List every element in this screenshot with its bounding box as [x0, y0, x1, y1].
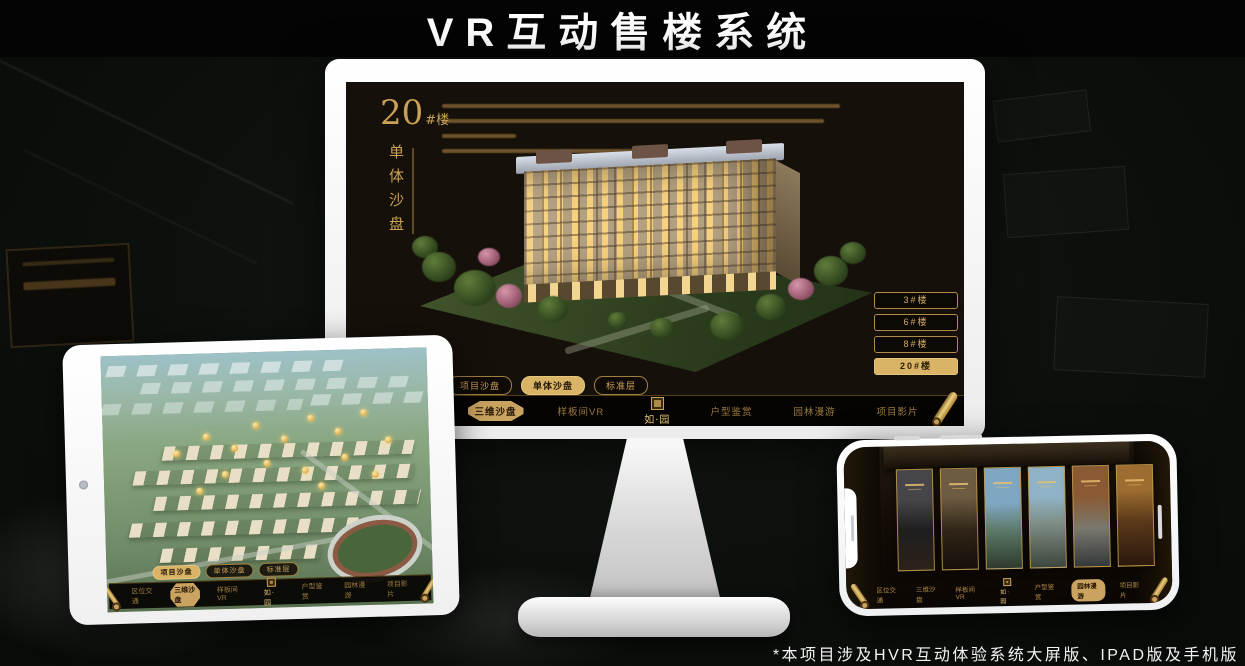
seal-icon [266, 577, 275, 586]
scene-gallery [896, 464, 1155, 571]
distant-buildings [100, 399, 303, 416]
gallery-panel[interactable] [1116, 464, 1155, 567]
brand-logo: 如·园 [1000, 578, 1015, 605]
phone-screen: 区位交通 三维沙盘 样板间VR 如·园 户型鉴赏 园林漫游 项目影片 [843, 441, 1172, 610]
paragraph-line [442, 104, 840, 108]
nav-item-model-room-vr[interactable]: 样板间VR [213, 583, 245, 605]
building-number-badge[interactable] [318, 482, 325, 489]
nav-item-project-film[interactable]: 项目影片 [1117, 578, 1146, 601]
nav-item-floorplans[interactable]: 户型鉴赏 [1032, 579, 1061, 602]
building-number-badge[interactable] [252, 422, 259, 429]
tree [538, 296, 568, 322]
scroll-icon [932, 390, 959, 425]
monitor-stand-base [518, 597, 790, 637]
paragraph-line [442, 134, 516, 138]
nav-item-garden-roam[interactable]: 园林漫游 [340, 578, 370, 603]
gallery-panel[interactable] [896, 469, 935, 572]
smartphone-device: 区位交通 三维沙盘 样板间VR 如·园 户型鉴赏 园林漫游 项目影片 [836, 433, 1180, 616]
building-number-badge[interactable] [335, 428, 342, 435]
tab-single-building[interactable]: 单体沙盘 [521, 376, 585, 395]
brand-logo-text: 如·园 [1000, 587, 1015, 605]
tree [710, 312, 744, 340]
gallery-panel[interactable] [1028, 466, 1067, 569]
building-number-badge[interactable] [263, 460, 270, 467]
roof-gable [726, 139, 762, 154]
nav-item-3d-sandbox[interactable]: 三维沙盘 [468, 401, 524, 421]
building-side-face [776, 160, 800, 285]
phone-navbar: 区位交通 三维沙盘 样板间VR 如·园 户型鉴赏 园林漫游 项目影片 [856, 579, 1162, 604]
tab-standard-floor[interactable]: 标准层 [594, 376, 648, 395]
flower-tree [788, 278, 814, 300]
background-building-block [1053, 296, 1209, 378]
brand-logo-text: 如·园 [264, 587, 279, 607]
nav-item-floorplans[interactable]: 户型鉴赏 [703, 401, 759, 421]
tree [608, 312, 628, 328]
building-number-badge[interactable] [203, 433, 210, 440]
page-title: VR互动售楼系统 [427, 0, 819, 58]
sandbox-3d-viewport[interactable] [412, 144, 886, 378]
gallery-panel[interactable] [984, 467, 1023, 570]
seal-icon [1003, 578, 1011, 586]
home-indicator [1158, 505, 1163, 539]
scroll-icon [103, 585, 121, 608]
tab-single-building[interactable]: 单体沙盘 [205, 563, 253, 578]
tree [840, 242, 866, 264]
building-number-badge[interactable] [281, 435, 288, 442]
tree [454, 270, 496, 306]
tab-project-sandbox[interactable]: 项目沙盘 [152, 565, 200, 580]
building-button-3[interactable]: 3#楼 [874, 292, 958, 309]
camera-icon [79, 480, 88, 489]
roof-gable [632, 144, 668, 159]
nav-item-garden-roam[interactable]: 园林漫游 [1071, 578, 1106, 601]
residential-row [162, 440, 415, 461]
flower-tree [478, 248, 500, 266]
building-number-badge[interactable] [360, 409, 367, 416]
paragraph-line [442, 119, 824, 123]
residential-row [129, 517, 372, 538]
sandbox-tabs: 项目沙盘 单体沙盘 标准层 [448, 376, 648, 395]
ipad-device: 项目沙盘 单体沙盘 标准层 区位交通 三维沙盘 样板间VR 如·园 户型鉴赏 园… [62, 335, 460, 626]
tab-standard-floor[interactable]: 标准层 [258, 562, 298, 577]
building-heading: 20#楼 [380, 96, 449, 130]
nav-item-3d-sandbox[interactable]: 三维沙盘 [170, 582, 200, 607]
nav-item-garden-roam[interactable]: 园林漫游 [786, 401, 842, 421]
building-button-8[interactable]: 8#楼 [874, 336, 958, 353]
building-button-20[interactable]: 20#楼 [874, 358, 958, 375]
background-building-block [1003, 166, 1129, 238]
nav-item-model-room-vr[interactable]: 样板间VR [551, 401, 612, 421]
building-model [524, 143, 776, 302]
building-number-badge[interactable] [196, 488, 203, 495]
ipad-screen: 项目沙盘 单体沙盘 标准层 区位交通 三维沙盘 样板间VR 如·园 户型鉴赏 园… [100, 347, 433, 612]
title-band: VR互动售楼系统 [0, 0, 1245, 57]
seal-icon [651, 397, 664, 410]
background-plaque [5, 243, 134, 348]
building-number-badge[interactable] [341, 454, 348, 461]
footer-caption: *本项目涉及HVR互动体验系统大屏版、IPAD版及手机版 [773, 641, 1239, 665]
tree [650, 318, 674, 338]
nav-item-project-film[interactable]: 项目影片 [869, 401, 925, 421]
building-selector: 3#楼 6#楼 8#楼 20#楼 [874, 292, 958, 380]
building-button-6[interactable]: 6#楼 [874, 314, 958, 331]
gallery-panel[interactable] [1072, 465, 1111, 568]
phone-notch [843, 488, 858, 568]
distant-buildings [140, 376, 413, 395]
nav-item-location[interactable]: 区位交通 [873, 583, 902, 606]
gallery-panel[interactable] [940, 468, 979, 571]
nav-item-3d-sandbox[interactable]: 三维沙盘 [913, 582, 942, 605]
roof-gable [536, 149, 572, 164]
brand-logo: 如·园 [263, 577, 279, 607]
tab-project-sandbox[interactable]: 项目沙盘 [448, 376, 512, 395]
nav-item-floorplans[interactable]: 户型鉴赏 [297, 579, 327, 604]
building-number-badge[interactable] [307, 414, 314, 421]
distant-buildings [310, 391, 423, 405]
nav-item-model-room-vr[interactable]: 样板间VR [952, 583, 983, 603]
nav-item-project-film[interactable]: 项目影片 [383, 576, 413, 601]
distant-buildings [105, 360, 348, 378]
plaque-text-line [22, 258, 114, 267]
vertical-title: 单体沙盘 [386, 144, 407, 240]
brand-logo: 如·园 [644, 397, 670, 426]
plaque-text-line [23, 278, 115, 291]
flower-tree [496, 284, 522, 308]
nav-item-location[interactable]: 区位交通 [127, 583, 157, 608]
stage: VR互动售楼系统 20#楼 单体沙盘 [0, 0, 1245, 666]
building-number: 20 [380, 93, 423, 133]
tree [756, 294, 786, 320]
brand-logo-text: 如·园 [644, 411, 670, 426]
building-facade [524, 158, 776, 284]
tree [422, 252, 456, 282]
